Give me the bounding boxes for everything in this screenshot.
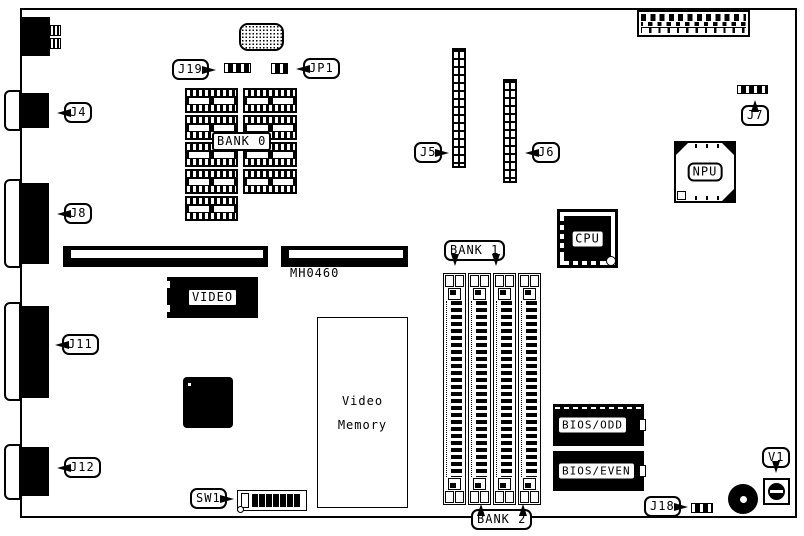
j7-pointer xyxy=(751,95,759,112)
bank0-chip xyxy=(243,169,297,194)
j7-connector xyxy=(737,85,768,94)
npu-pin1-notch xyxy=(677,191,686,200)
bank2-pointer-right xyxy=(519,499,527,516)
j19-connector xyxy=(224,63,251,73)
j11-callout: J11 xyxy=(62,334,99,355)
video-memory-line1: Video xyxy=(342,394,383,408)
j6-callout: J6 xyxy=(532,142,560,163)
power-cells-row xyxy=(641,27,746,33)
dip-switch-pos-5 xyxy=(273,494,279,507)
npu-corner xyxy=(676,143,688,155)
bios-odd-chip: BIOS/ODD xyxy=(553,404,644,446)
j18-label: J18 xyxy=(650,499,675,513)
cpu-ticks-left xyxy=(560,221,564,254)
j19-callout: J19 xyxy=(172,59,209,80)
sw1-label: SW1 xyxy=(196,491,221,505)
dip-switch-pos-2 xyxy=(252,494,258,507)
video-memory-line2: Memory xyxy=(338,418,387,432)
j8-callout: J8 xyxy=(64,203,92,224)
j18-connector xyxy=(691,503,713,513)
j4-connector xyxy=(20,93,49,128)
j6-header xyxy=(503,79,517,183)
bank2-pointer-left xyxy=(477,499,485,516)
j8-connector xyxy=(20,183,49,264)
speaker xyxy=(728,484,758,514)
npu-corner xyxy=(722,189,734,201)
j18-pointer xyxy=(674,503,693,511)
j11-label: J11 xyxy=(68,337,93,351)
dip-switch-pos-7 xyxy=(287,494,293,507)
simm-slot-2 xyxy=(468,273,491,505)
bank0-chip xyxy=(185,169,238,194)
j8-shell xyxy=(4,179,21,268)
j5-callout: J5 xyxy=(414,142,442,163)
v1-trimmer xyxy=(763,478,790,505)
video-chip: VIDEO xyxy=(167,277,258,318)
dip-switch-pos-3 xyxy=(259,494,265,507)
j12-shell xyxy=(4,444,21,500)
j12-callout: J12 xyxy=(64,457,101,478)
bank1-pointer-right xyxy=(492,254,500,271)
bios-even-side-notch xyxy=(639,465,646,477)
cpu-ticks-bottom xyxy=(569,261,604,265)
bios-odd-notch-line xyxy=(555,407,642,409)
j8-pointer xyxy=(52,210,71,218)
bank0-chip xyxy=(185,196,238,221)
bank1-callout: BANK 1 xyxy=(444,240,505,261)
part-number: MH0460 xyxy=(290,266,339,280)
j4-pointer xyxy=(52,109,71,117)
cpu-socket: CPU xyxy=(557,209,618,268)
video-label: VIDEO xyxy=(187,288,238,307)
bank0-label: BANK 0 xyxy=(212,132,271,151)
jp1-callout: JP1 xyxy=(303,58,340,79)
j6-label: J6 xyxy=(538,145,554,159)
cpu-label: CPU xyxy=(571,230,604,247)
j11-connector xyxy=(20,306,49,398)
j12-label: J12 xyxy=(70,460,95,474)
qfp-chip xyxy=(183,377,233,428)
bios-odd-side-notch xyxy=(639,419,646,431)
j7-callout: J7 xyxy=(741,105,769,126)
cpu-pin1-notch xyxy=(606,256,616,266)
dip-switch-pos-4 xyxy=(266,494,272,507)
bank0-chip xyxy=(185,88,238,113)
bank0-chip xyxy=(243,88,297,113)
npu-socket: NPU xyxy=(674,141,736,203)
power-pins-row xyxy=(641,14,746,21)
j5-label: J5 xyxy=(420,145,436,159)
dip-switch-sw1 xyxy=(237,490,307,511)
j11-shell xyxy=(4,302,21,401)
bios-even-chip: BIOS/EVEN xyxy=(553,451,644,491)
jp1-connector xyxy=(271,63,288,74)
dip-switch-pos-6 xyxy=(280,494,286,507)
bank2-callout: BANK 2 xyxy=(471,509,532,530)
j19-label: J19 xyxy=(178,62,203,76)
j5-pointer xyxy=(435,149,454,157)
npu-label: NPU xyxy=(688,163,723,182)
video-memory-area: Video Memory xyxy=(317,317,408,508)
j6-pointer xyxy=(520,149,539,157)
sw1-pointer xyxy=(220,495,239,503)
power-connector xyxy=(637,10,750,37)
j12-connector xyxy=(20,447,49,496)
j11-pointer xyxy=(50,341,69,349)
j18-callout: J18 xyxy=(644,496,681,517)
bios-odd-label: BIOS/ODD xyxy=(558,417,627,434)
jp1-pointer xyxy=(291,65,310,73)
j19-pointer xyxy=(202,66,221,74)
bank1-pointer-left xyxy=(451,254,459,271)
dip-switch-pos-8 xyxy=(294,494,300,507)
keyboard-plug-top xyxy=(50,25,61,36)
j4-shell xyxy=(4,90,21,131)
dip-switch-pos-1 xyxy=(241,493,249,508)
motherboard-diagram: J4 J8 J11 J12 J19 JP1 J7 xyxy=(0,0,804,536)
expansion-slot-1 xyxy=(63,246,268,267)
keyboard-plug-bottom xyxy=(50,38,61,49)
j4-label: J4 xyxy=(70,105,86,119)
j4-callout: J4 xyxy=(64,102,92,123)
v1-callout: V1 xyxy=(762,447,790,468)
keyboard-connector xyxy=(22,17,50,56)
jp1-label: JP1 xyxy=(309,61,334,75)
npu-corner xyxy=(722,143,734,155)
v1-pointer xyxy=(772,461,780,478)
sw1-callout: SW1 xyxy=(190,488,227,509)
simm-slot-3 xyxy=(493,273,516,505)
j8-label: J8 xyxy=(70,206,86,220)
simm-slot-4 xyxy=(518,273,541,505)
v1-trimmer-screw xyxy=(768,483,785,500)
simm-slot-1 xyxy=(443,273,466,505)
bios-even-label: BIOS/EVEN xyxy=(558,463,635,480)
expansion-slot-2 xyxy=(281,246,408,267)
power-mid-row xyxy=(641,22,746,26)
crystal-oscillator xyxy=(239,23,284,51)
j12-pointer xyxy=(52,464,71,472)
